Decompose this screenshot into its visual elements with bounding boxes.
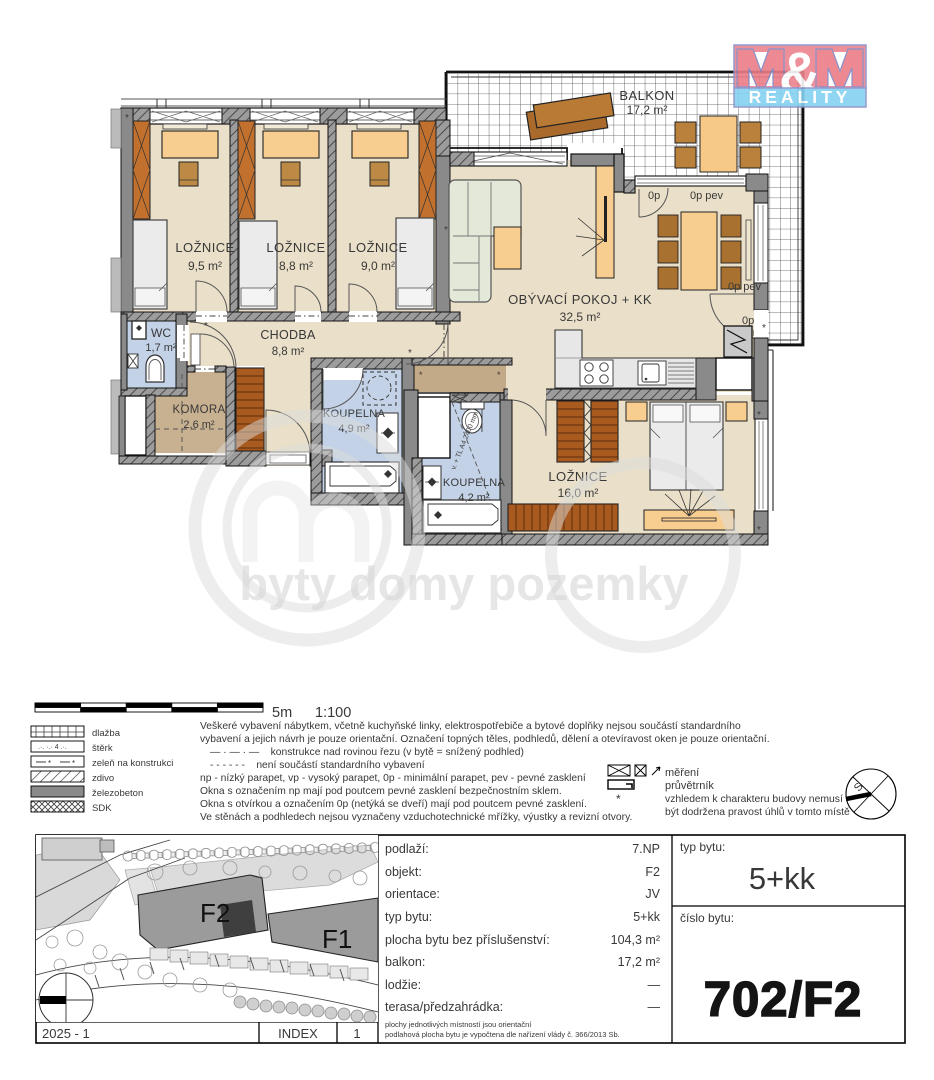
svg-text:*: * bbox=[204, 321, 208, 332]
svg-text:byty domy pozemky: byty domy pozemky bbox=[239, 557, 688, 610]
svg-text:*: * bbox=[125, 113, 129, 124]
svg-text:REALITY: REALITY bbox=[749, 87, 852, 107]
svg-text:1,7 m²: 1,7 m² bbox=[145, 342, 177, 354]
svg-text:5m: 5m bbox=[272, 705, 292, 721]
svg-text:F1: F1 bbox=[322, 924, 352, 954]
svg-text:dlažba: dlažba bbox=[92, 728, 121, 739]
svg-text:F2: F2 bbox=[645, 865, 660, 879]
svg-text:9,0 m²: 9,0 m² bbox=[361, 259, 395, 273]
svg-text:WC: WC bbox=[151, 326, 171, 340]
svg-text:průvětrník: průvětrník bbox=[665, 780, 714, 792]
svg-text:Okna s otvírkou a označením 0p: Okna s otvírkou a označením 0p (netýká s… bbox=[200, 799, 587, 810]
svg-text:JV: JV bbox=[645, 887, 660, 901]
svg-text:štěrk: štěrk bbox=[92, 743, 113, 754]
svg-text:orientace:: orientace: bbox=[385, 887, 440, 901]
svg-text:KOUPELNA: KOUPELNA bbox=[443, 477, 506, 489]
svg-text:— · — · — konstrukce nad ro: — · — · — konstrukce nad rovinou řezu (v… bbox=[210, 747, 524, 758]
svg-text:*: * bbox=[463, 391, 467, 402]
svg-text:104,3 m²: 104,3 m² bbox=[611, 933, 660, 947]
svg-text:zdivo: zdivo bbox=[92, 773, 114, 784]
svg-text:F2: F2 bbox=[200, 898, 230, 928]
svg-text:objekt:: objekt: bbox=[385, 865, 422, 879]
svg-text:podlaží:: podlaží: bbox=[385, 842, 429, 856]
svg-text:*: * bbox=[444, 225, 448, 236]
svg-text:terasa/předzahrádka:: terasa/předzahrádka: bbox=[385, 1000, 503, 1014]
svg-text:typ bytu:: typ bytu: bbox=[385, 910, 432, 924]
svg-text:0p: 0p bbox=[648, 190, 660, 202]
svg-text:lodžie:: lodžie: bbox=[385, 978, 421, 992]
svg-text:*: * bbox=[757, 525, 761, 536]
svg-text:4,2 m²: 4,2 m² bbox=[458, 492, 490, 504]
svg-text:*: * bbox=[757, 410, 761, 421]
svg-text:.·. ·.· 4 .·.: .·. ·.· 4 .·. bbox=[38, 744, 67, 751]
svg-text:plochy jednotlivých místností: plochy jednotlivých místností jsou orien… bbox=[385, 1020, 532, 1029]
svg-text:*: * bbox=[616, 792, 621, 806]
svg-text:*: * bbox=[419, 370, 423, 380]
svg-text:LOŽNICE: LOŽNICE bbox=[348, 240, 407, 255]
svg-text:702/F2: 702/F2 bbox=[704, 973, 863, 1027]
svg-text:KOMORA: KOMORA bbox=[173, 404, 226, 416]
svg-text:—: — bbox=[648, 1000, 661, 1014]
svg-text:- - - - - - není součástí s: - - - - - - není součástí standardního v… bbox=[210, 760, 425, 771]
svg-text:měření: měření bbox=[665, 767, 699, 779]
svg-text:—: — bbox=[648, 978, 661, 992]
svg-text:LOŽNICE: LOŽNICE bbox=[266, 240, 325, 255]
svg-text:7.NP: 7.NP bbox=[632, 842, 660, 856]
svg-text:8,8 m²: 8,8 m² bbox=[272, 346, 305, 358]
svg-text:plocha bytu bez příslušenství:: plocha bytu bez příslušenství: bbox=[385, 933, 550, 947]
svg-text:*: * bbox=[72, 759, 75, 768]
svg-text:*: * bbox=[408, 348, 412, 359]
svg-text:32,5 m²: 32,5 m² bbox=[560, 310, 601, 324]
svg-text:8,8 m²: 8,8 m² bbox=[279, 259, 313, 273]
svg-text:*: * bbox=[48, 759, 51, 768]
svg-text:5+kk: 5+kk bbox=[633, 910, 661, 924]
svg-text:0p pev: 0p pev bbox=[690, 190, 724, 202]
svg-text:INDEX: INDEX bbox=[278, 1026, 318, 1041]
svg-text:podlahová plocha bytu je vypoč: podlahová plocha bytu je vypočtena dle n… bbox=[385, 1030, 620, 1039]
svg-text:2,6 m²: 2,6 m² bbox=[183, 419, 215, 431]
svg-text:OBÝVACÍ POKOJ + KK: OBÝVACÍ POKOJ + KK bbox=[508, 292, 652, 307]
svg-text:vybavení a jejich návrh je pou: vybavení a jejich návrh je pouze orienta… bbox=[200, 733, 770, 745]
svg-text:0p: 0p bbox=[742, 315, 754, 327]
svg-text:balkon:: balkon: bbox=[385, 955, 425, 969]
svg-text:BALKON: BALKON bbox=[619, 88, 674, 103]
svg-text:železobeton: železobeton bbox=[92, 788, 143, 799]
svg-text:np - nízký parapet, vp - vysok: np - nízký parapet, vp - vysoký parapet,… bbox=[200, 773, 586, 784]
svg-text:Ve stěnách a podhledech nejsou: Ve stěnách a podhledech nejsou vyznačeny… bbox=[200, 812, 632, 823]
svg-text:SDK: SDK bbox=[92, 803, 112, 814]
svg-text:zeleň na konstrukci: zeleň na konstrukci bbox=[92, 758, 173, 769]
svg-text:LOŽNICE: LOŽNICE bbox=[175, 240, 234, 255]
svg-text:17,2 m²: 17,2 m² bbox=[618, 955, 660, 969]
svg-text:CHODBA: CHODBA bbox=[260, 328, 316, 342]
svg-text:Okna s označením np mají pod p: Okna s označením np mají pod poutcem pev… bbox=[200, 786, 562, 797]
svg-text:0p pev: 0p pev bbox=[728, 281, 762, 293]
svg-text:1:100: 1:100 bbox=[315, 705, 351, 721]
svg-text:číslo bytu:: číslo bytu: bbox=[680, 911, 734, 925]
svg-text:*: * bbox=[497, 370, 501, 380]
svg-text:vzhledem k charakteru budovy n: vzhledem k charakteru budovy nemusí bbox=[665, 794, 843, 805]
svg-text:5+kk: 5+kk bbox=[749, 861, 816, 896]
svg-text:9,5 m²: 9,5 m² bbox=[188, 259, 222, 273]
svg-text:typ bytu:: typ bytu: bbox=[680, 840, 725, 854]
svg-text:2025 - 1: 2025 - 1 bbox=[42, 1026, 90, 1041]
svg-text:1: 1 bbox=[353, 1026, 360, 1041]
svg-text:Veškeré vybavení nábytkem, vče: Veškeré vybavení nábytkem, včetně kuchyň… bbox=[200, 721, 741, 732]
svg-text:*: * bbox=[762, 323, 766, 334]
svg-text:být dodržena pravost úhlů v to: být dodržena pravost úhlů v tomto místě bbox=[665, 806, 850, 818]
svg-text:17,2 m²: 17,2 m² bbox=[627, 103, 668, 117]
